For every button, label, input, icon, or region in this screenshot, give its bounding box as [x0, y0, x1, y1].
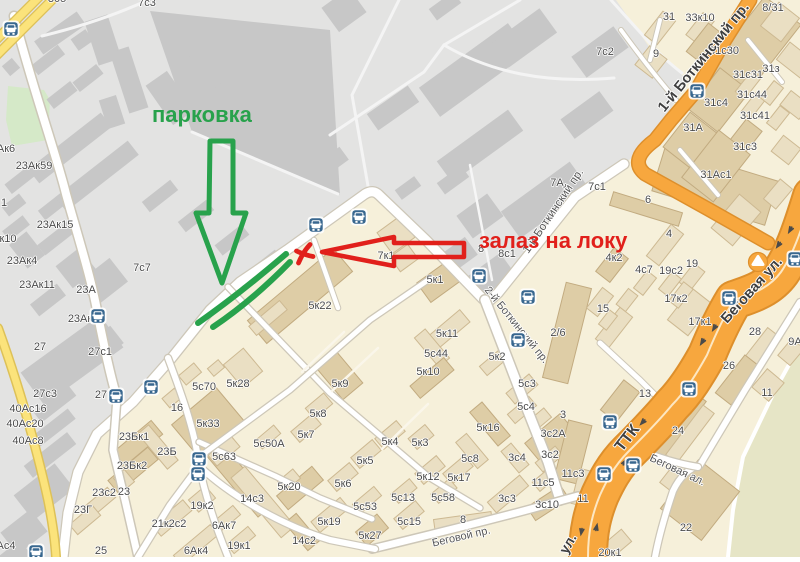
svg-text:15: 15	[597, 303, 609, 315]
svg-text:5к11: 5к11	[436, 328, 458, 340]
svg-text:залаз на локу: залаз на локу	[479, 228, 628, 253]
svg-text:4с7: 4с7	[635, 264, 653, 276]
svg-text:27: 27	[95, 389, 107, 401]
svg-text:23Ак15: 23Ак15	[37, 219, 74, 231]
svg-text:3с10: 3с10	[535, 499, 559, 511]
svg-text:5с58: 5с58	[431, 492, 455, 504]
svg-text:3с4: 3с4	[508, 452, 526, 464]
svg-text:9А: 9А	[788, 336, 800, 348]
svg-text:8: 8	[460, 514, 466, 526]
svg-text:5с70: 5с70	[192, 381, 216, 393]
svg-text:5с63: 5с63	[212, 451, 236, 463]
svg-text:26: 26	[723, 360, 735, 372]
svg-text:31с31: 31с31	[733, 69, 763, 81]
svg-text:21к2с2: 21к2с2	[152, 518, 187, 530]
svg-text:17к2: 17к2	[664, 293, 687, 305]
svg-text:40Ас20: 40Ас20	[6, 418, 43, 430]
svg-text:23с2: 23с2	[92, 487, 116, 499]
svg-text:31: 31	[663, 11, 675, 23]
svg-text:23Ак59: 23Ак59	[16, 160, 53, 172]
svg-text:31Ас1: 31Ас1	[700, 169, 731, 181]
svg-text:5к20: 5к20	[277, 481, 300, 493]
svg-text:31с44: 31с44	[737, 89, 767, 101]
svg-text:305: 305	[48, 0, 66, 5]
svg-text:Ак6: Ак6	[0, 143, 15, 155]
svg-text:23Ак11: 23Ак11	[19, 279, 55, 291]
svg-text:20к1: 20к1	[598, 547, 621, 557]
svg-text:5с53: 5с53	[353, 501, 377, 513]
svg-text:11с3: 11с3	[561, 468, 584, 480]
svg-text:23Ак: 23Ак	[68, 313, 93, 325]
svg-text:13: 13	[639, 388, 651, 400]
svg-text:14с3: 14с3	[240, 493, 264, 505]
svg-text:9: 9	[653, 48, 659, 60]
svg-text:23Бк1: 23Бк1	[119, 431, 149, 443]
svg-text:5к33: 5к33	[196, 418, 219, 430]
svg-text:5с4: 5с4	[517, 401, 535, 413]
svg-text:25: 25	[95, 545, 107, 557]
svg-text:1: 1	[1, 197, 7, 209]
svg-text:11: 11	[761, 387, 772, 399]
svg-text:5к1: 5к1	[426, 274, 443, 286]
svg-text:5к22: 5к22	[308, 300, 331, 312]
svg-text:5к4: 5к4	[381, 436, 398, 448]
svg-text:7с1: 7с1	[588, 181, 606, 193]
svg-text:5с50А: 5с50А	[253, 438, 285, 450]
svg-text:31с3: 31с3	[733, 141, 757, 153]
svg-text:31с41: 31с41	[740, 110, 770, 122]
svg-text:27: 27	[34, 341, 46, 353]
svg-text:5к27: 5к27	[358, 530, 381, 542]
svg-text:27с1: 27с1	[88, 346, 112, 358]
svg-text:31А: 31А	[683, 122, 703, 134]
svg-text:7с7: 7с7	[133, 262, 151, 274]
svg-text:5с44: 5с44	[424, 348, 448, 360]
svg-text:23: 23	[118, 486, 130, 498]
svg-text:4к2: 4к2	[605, 252, 622, 264]
svg-text:3с2: 3с2	[541, 449, 559, 461]
svg-text:27с3: 27с3	[33, 388, 57, 400]
svg-text:8/31: 8/31	[762, 2, 783, 14]
svg-text:5к3: 5к3	[411, 437, 428, 449]
svg-text:33к10: 33к10	[685, 12, 714, 24]
svg-text:5с15: 5с15	[397, 516, 421, 528]
svg-text:6: 6	[645, 194, 651, 206]
svg-text:16: 16	[171, 402, 183, 414]
svg-text:5к9: 5к9	[331, 378, 348, 390]
svg-text:31з: 31з	[762, 63, 779, 75]
svg-text:5с13: 5с13	[391, 492, 415, 504]
svg-text:11с5: 11с5	[531, 477, 554, 489]
svg-text:28: 28	[749, 326, 761, 338]
svg-text:23Б: 23Б	[157, 446, 176, 458]
svg-text:5к6: 5к6	[334, 478, 351, 490]
svg-text:23Бк2: 23Бк2	[117, 460, 147, 472]
svg-text:5с8: 5с8	[461, 453, 479, 465]
svg-text:к10: к10	[0, 233, 17, 245]
svg-text:Ас4: Ас4	[0, 540, 15, 552]
svg-text:5к7: 5к7	[297, 429, 314, 441]
svg-text:19к1: 19к1	[227, 540, 250, 552]
svg-text:3с2А: 3с2А	[540, 428, 566, 440]
svg-text:7с3: 7с3	[138, 0, 156, 9]
svg-text:5к19: 5к19	[317, 516, 340, 528]
svg-text:6Ак4: 6Ак4	[184, 545, 208, 557]
svg-text:3с3: 3с3	[498, 493, 516, 505]
svg-text:5к8: 5к8	[309, 408, 326, 420]
svg-text:5к12: 5к12	[416, 471, 439, 483]
svg-text:23Г: 23Г	[74, 504, 92, 516]
svg-text:17к1: 17к1	[688, 316, 711, 328]
svg-text:5к10: 5к10	[416, 366, 439, 378]
svg-text:5к5: 5к5	[356, 455, 373, 467]
svg-text:22: 22	[680, 522, 692, 534]
svg-text:40Ас8: 40Ас8	[12, 435, 43, 447]
svg-text:6Ак7: 6Ак7	[212, 520, 236, 532]
svg-text:23А: 23А	[76, 284, 96, 296]
svg-text:24: 24	[672, 425, 684, 437]
svg-text:5с3: 5с3	[518, 378, 536, 390]
svg-text:23Ак4: 23Ак4	[7, 255, 38, 267]
svg-text:14с2: 14с2	[292, 535, 316, 547]
svg-text:3: 3	[560, 409, 566, 421]
svg-text:4: 4	[666, 228, 672, 240]
svg-text:5к2: 5к2	[488, 351, 505, 363]
svg-text:19к2: 19к2	[190, 500, 213, 512]
svg-text:7с2: 7с2	[596, 46, 614, 58]
svg-text:40Ас16: 40Ас16	[9, 403, 46, 415]
svg-text:11: 11	[577, 493, 588, 505]
svg-text:31с4: 31с4	[704, 97, 728, 109]
svg-text:19: 19	[686, 258, 698, 270]
svg-text:5к28: 5к28	[226, 378, 249, 390]
svg-text:19с2: 19с2	[659, 265, 683, 277]
svg-text:парковка: парковка	[152, 102, 253, 127]
svg-text:2/6: 2/6	[550, 327, 565, 339]
svg-text:5к17: 5к17	[447, 472, 470, 484]
svg-text:5к16: 5к16	[476, 422, 499, 434]
